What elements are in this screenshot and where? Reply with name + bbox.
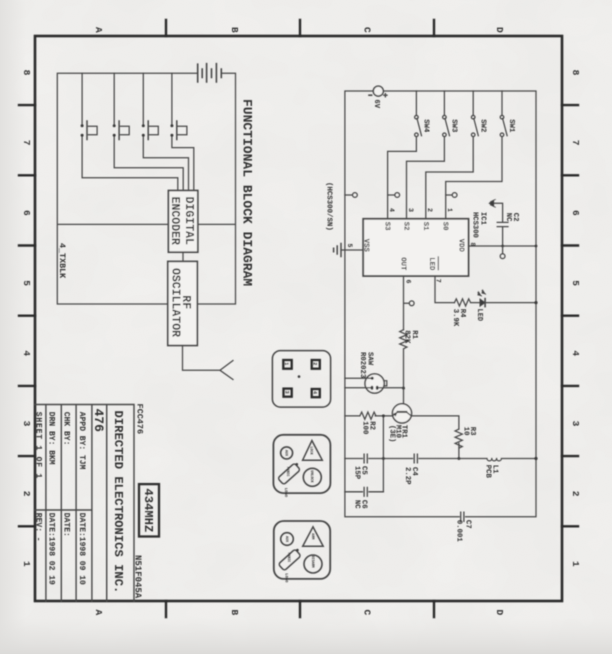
svg-text:FUNCTIONAL BLOCK DIAGRAM: FUNCTIONAL BLOCK DIAGRAM <box>240 99 255 286</box>
svg-text:S3: S3 <box>383 222 391 231</box>
svg-text:A: A <box>93 610 104 616</box>
svg-text:DISARM: DISARM <box>310 556 314 568</box>
svg-text:OSCILLATOR: OSCILLATOR <box>168 268 181 337</box>
svg-text:4_TXBLK: 4_TXBLK <box>57 243 67 279</box>
svg-text:6: 6 <box>21 210 32 216</box>
svg-text:2: 2 <box>312 362 318 365</box>
svg-text:B: B <box>229 610 240 616</box>
svg-text:DATE:1998 02 19: DATE:1998 02 19 <box>47 513 56 585</box>
svg-text:AUX: AUX <box>284 536 288 543</box>
svg-text:1: 1 <box>283 362 289 365</box>
svg-text:REV: -: REV: - <box>34 513 43 542</box>
svg-text:DIRECTED ELECTRONICS INC.: DIRECTED ELECTRONICS INC. <box>111 411 125 594</box>
svg-text:4: 4 <box>388 208 395 212</box>
svg-text:1: 1 <box>446 208 453 212</box>
svg-text:8: 8 <box>469 242 476 246</box>
svg-text:DRN BY: BKM: DRN BY: BKM <box>47 412 56 465</box>
svg-text:FCC476: FCC476 <box>135 404 145 435</box>
svg-text:D: D <box>494 610 505 616</box>
svg-text:LOGO: LOGO <box>283 573 287 583</box>
svg-text:LOCK: LOCK <box>309 447 313 456</box>
svg-text:SW2: SW2 <box>478 119 486 132</box>
svg-text:DATE:: DATE: <box>62 513 71 537</box>
svg-text:LOGO: LOGO <box>283 488 287 498</box>
svg-text:VDD: VDD <box>457 239 465 253</box>
svg-text:3: 3 <box>21 421 32 427</box>
svg-text:B: B <box>229 27 240 33</box>
svg-text:NC: NC <box>504 213 512 222</box>
svg-text:A: A <box>93 27 104 33</box>
svg-text:7: 7 <box>21 140 32 146</box>
svg-text:D: D <box>494 27 505 33</box>
svg-text:APPD BY: TJM: APPD BY: TJM <box>77 412 86 470</box>
svg-text:4: 4 <box>312 391 318 394</box>
svg-text:100: 100 <box>360 421 368 434</box>
svg-text:2: 2 <box>570 491 581 497</box>
svg-text:OUT: OUT <box>398 257 406 271</box>
svg-text:ENCODER: ENCODER <box>168 197 181 245</box>
svg-text:7: 7 <box>435 279 442 283</box>
svg-text:7: 7 <box>570 140 581 146</box>
svg-text:1: 1 <box>21 561 32 567</box>
svg-text:R02023: R02023 <box>358 352 366 379</box>
svg-text:UNLOCK: UNLOCK <box>309 470 313 483</box>
svg-text:DIGITAL: DIGITAL <box>182 197 195 245</box>
svg-text:AUX: AUX <box>283 450 287 457</box>
svg-text:C: C <box>362 610 373 616</box>
svg-text:8: 8 <box>21 70 32 76</box>
svg-text:HCS300: HCS300 <box>471 212 479 238</box>
svg-text:S0: S0 <box>441 222 449 231</box>
svg-text:LED: LED <box>427 257 435 271</box>
svg-text:15P: 15P <box>353 466 361 480</box>
svg-text:2.2P: 2.2P <box>403 467 411 485</box>
svg-text:8: 8 <box>570 70 581 76</box>
svg-text:0.001: 0.001 <box>455 520 463 543</box>
svg-text:6: 6 <box>404 280 411 284</box>
svg-text:5: 5 <box>21 280 32 286</box>
svg-text:5: 5 <box>570 280 581 286</box>
svg-text:1: 1 <box>570 561 581 567</box>
svg-text:6V: 6V <box>372 99 380 108</box>
svg-text:C: C <box>362 27 373 33</box>
svg-text:LED: LED <box>475 309 483 322</box>
svg-text:SHEET 1 OF 1: SHEET 1 OF 1 <box>34 412 43 479</box>
svg-text:3: 3 <box>570 421 581 427</box>
svg-text:(3E): (3E) <box>387 425 395 443</box>
svg-text:4: 4 <box>570 350 581 356</box>
svg-text:PANIC: PANIC <box>287 553 291 563</box>
svg-text:S2: S2 <box>402 222 410 231</box>
svg-text:N51F045A: N51F045A <box>132 555 142 599</box>
svg-text:S1: S1 <box>421 222 429 231</box>
svg-text:SW4: SW4 <box>422 119 430 133</box>
svg-text:CHK BY:: CHK BY: <box>62 412 71 446</box>
svg-text:ARM: ARM <box>310 533 314 539</box>
svg-text:4: 4 <box>21 350 32 356</box>
svg-text:(HCS300/SN): (HCS300/SN) <box>325 182 333 231</box>
svg-text:476: 476 <box>91 409 106 433</box>
svg-text:3: 3 <box>283 391 289 394</box>
svg-text:DATE:1998 09 10: DATE:1998 09 10 <box>77 513 86 585</box>
svg-text:82K: 82K <box>403 330 411 344</box>
svg-text:PCB: PCB <box>484 465 492 479</box>
svg-text:434MHZ: 434MHZ <box>141 488 155 532</box>
svg-text:10: 10 <box>462 427 470 436</box>
svg-text:6: 6 <box>570 210 581 216</box>
svg-text:PANIC: PANIC <box>286 467 290 477</box>
svg-text:NC: NC <box>353 500 361 509</box>
svg-text:3: 3 <box>407 208 414 212</box>
svg-text:2: 2 <box>21 491 32 497</box>
svg-text:3.9K: 3.9K <box>451 309 459 327</box>
svg-text:C7: C7 <box>463 520 471 529</box>
svg-text:2: 2 <box>426 208 433 212</box>
svg-text:SW1: SW1 <box>507 119 515 133</box>
svg-text:5: 5 <box>346 244 353 248</box>
svg-text:SW3: SW3 <box>450 119 458 133</box>
